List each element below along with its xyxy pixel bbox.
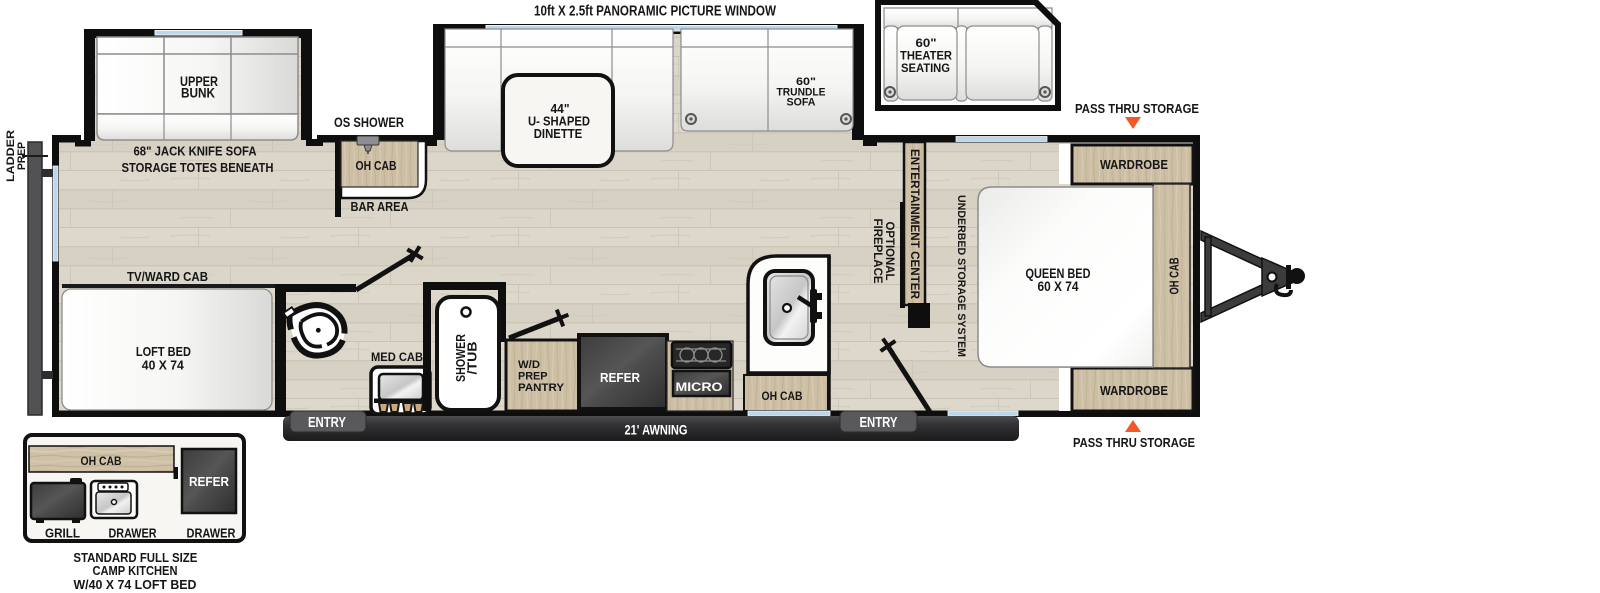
- svg-text:PASS THRU STORAGE: PASS THRU STORAGE: [1075, 102, 1199, 116]
- svg-text:BUNK: BUNK: [181, 86, 215, 101]
- svg-text:REFER: REFER: [189, 474, 229, 489]
- svg-text:TV/WARD CAB: TV/WARD CAB: [127, 269, 208, 284]
- svg-text:STORAGE TOTES BENEATH: STORAGE TOTES BENEATH: [122, 161, 274, 175]
- svg-text:FIREPLACE: FIREPLACE: [871, 219, 883, 284]
- svg-text:SOFA: SOFA: [787, 97, 816, 109]
- svg-text:DINETTE: DINETTE: [534, 126, 583, 141]
- svg-text:WARDROBE: WARDROBE: [1100, 383, 1168, 398]
- svg-text:ENTRY: ENTRY: [308, 415, 346, 431]
- svg-text:REFER: REFER: [600, 371, 640, 385]
- svg-text:10ft X 2.5ft PANORAMIC PICTURE: 10ft X 2.5ft PANORAMIC PICTURE WINDOW: [534, 4, 776, 20]
- svg-text:SEATING: SEATING: [901, 61, 950, 75]
- svg-text:CAMP KITCHEN: CAMP KITCHEN: [93, 563, 178, 578]
- svg-text:OH CAB: OH CAB: [1168, 258, 1182, 295]
- svg-text:WARDROBE: WARDROBE: [1100, 157, 1168, 172]
- svg-text:OH CAB: OH CAB: [81, 454, 122, 468]
- svg-text:PANTRY: PANTRY: [518, 382, 565, 394]
- svg-text:UNDERBED STORAGE SYSTEM: UNDERBED STORAGE SYSTEM: [955, 195, 967, 357]
- svg-text:60 X 74: 60 X 74: [1038, 278, 1079, 294]
- svg-text:MICRO: MICRO: [676, 380, 723, 394]
- svg-text:OPTIONAL: OPTIONAL: [883, 222, 895, 281]
- svg-text:PASS THRU STORAGE: PASS THRU STORAGE: [1073, 436, 1195, 450]
- svg-text:W/D: W/D: [518, 359, 540, 371]
- svg-text:/TUB: /TUB: [466, 342, 480, 375]
- svg-text:OS SHOWER: OS SHOWER: [334, 115, 404, 130]
- svg-text:PREP: PREP: [518, 371, 548, 383]
- svg-text:ENTERTAINMENT CENTER: ENTERTAINMENT CENTER: [908, 149, 920, 300]
- svg-text:DRAWER: DRAWER: [187, 526, 237, 541]
- svg-text:GRILL: GRILL: [45, 526, 80, 541]
- svg-text:BAR AREA: BAR AREA: [351, 200, 409, 214]
- svg-text:21' AWNING: 21' AWNING: [625, 423, 688, 438]
- svg-text:MED CAB: MED CAB: [371, 350, 423, 364]
- svg-text:PREP: PREP: [16, 142, 28, 170]
- svg-text:40 X 74: 40 X 74: [142, 358, 185, 373]
- svg-text:68" JACK KNIFE SOFA: 68" JACK KNIFE SOFA: [134, 145, 257, 159]
- svg-text:ENTRY: ENTRY: [860, 415, 898, 431]
- svg-text:DRAWER: DRAWER: [109, 526, 158, 541]
- svg-text:W/40 X 74 LOFT BED: W/40 X 74 LOFT BED: [74, 577, 197, 592]
- svg-text:OH CAB: OH CAB: [762, 389, 803, 403]
- svg-text:OH CAB: OH CAB: [356, 159, 397, 173]
